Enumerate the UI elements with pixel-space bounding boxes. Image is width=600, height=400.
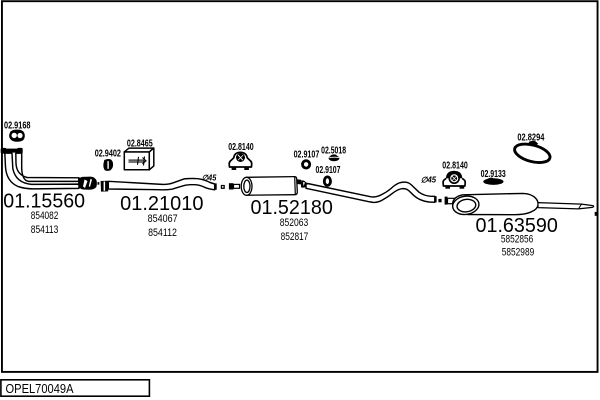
svg-text:854112: 854112 bbox=[148, 227, 177, 239]
svg-text:5852856: 5852856 bbox=[501, 233, 533, 245]
svg-text:02.9133: 02.9133 bbox=[481, 168, 506, 180]
svg-text:854113: 854113 bbox=[31, 224, 59, 236]
svg-text:5852989: 5852989 bbox=[502, 247, 534, 259]
svg-text:02.9107: 02.9107 bbox=[316, 164, 341, 176]
svg-text:∅45: ∅45 bbox=[421, 176, 437, 185]
svg-text:854082: 854082 bbox=[31, 210, 59, 222]
svg-text:02.9402: 02.9402 bbox=[95, 147, 121, 159]
svg-text:02.9107: 02.9107 bbox=[294, 149, 320, 161]
svg-text:01.52180: 01.52180 bbox=[251, 197, 333, 219]
svg-text:02.8140: 02.8140 bbox=[228, 141, 254, 153]
svg-text:852817: 852817 bbox=[281, 231, 309, 243]
svg-text:OPEL70049A: OPEL70049A bbox=[6, 381, 74, 396]
svg-text:854067: 854067 bbox=[148, 213, 178, 225]
svg-text:852063: 852063 bbox=[280, 217, 309, 229]
svg-text:02.8140: 02.8140 bbox=[442, 159, 468, 171]
svg-text:01.21010: 01.21010 bbox=[120, 193, 203, 215]
